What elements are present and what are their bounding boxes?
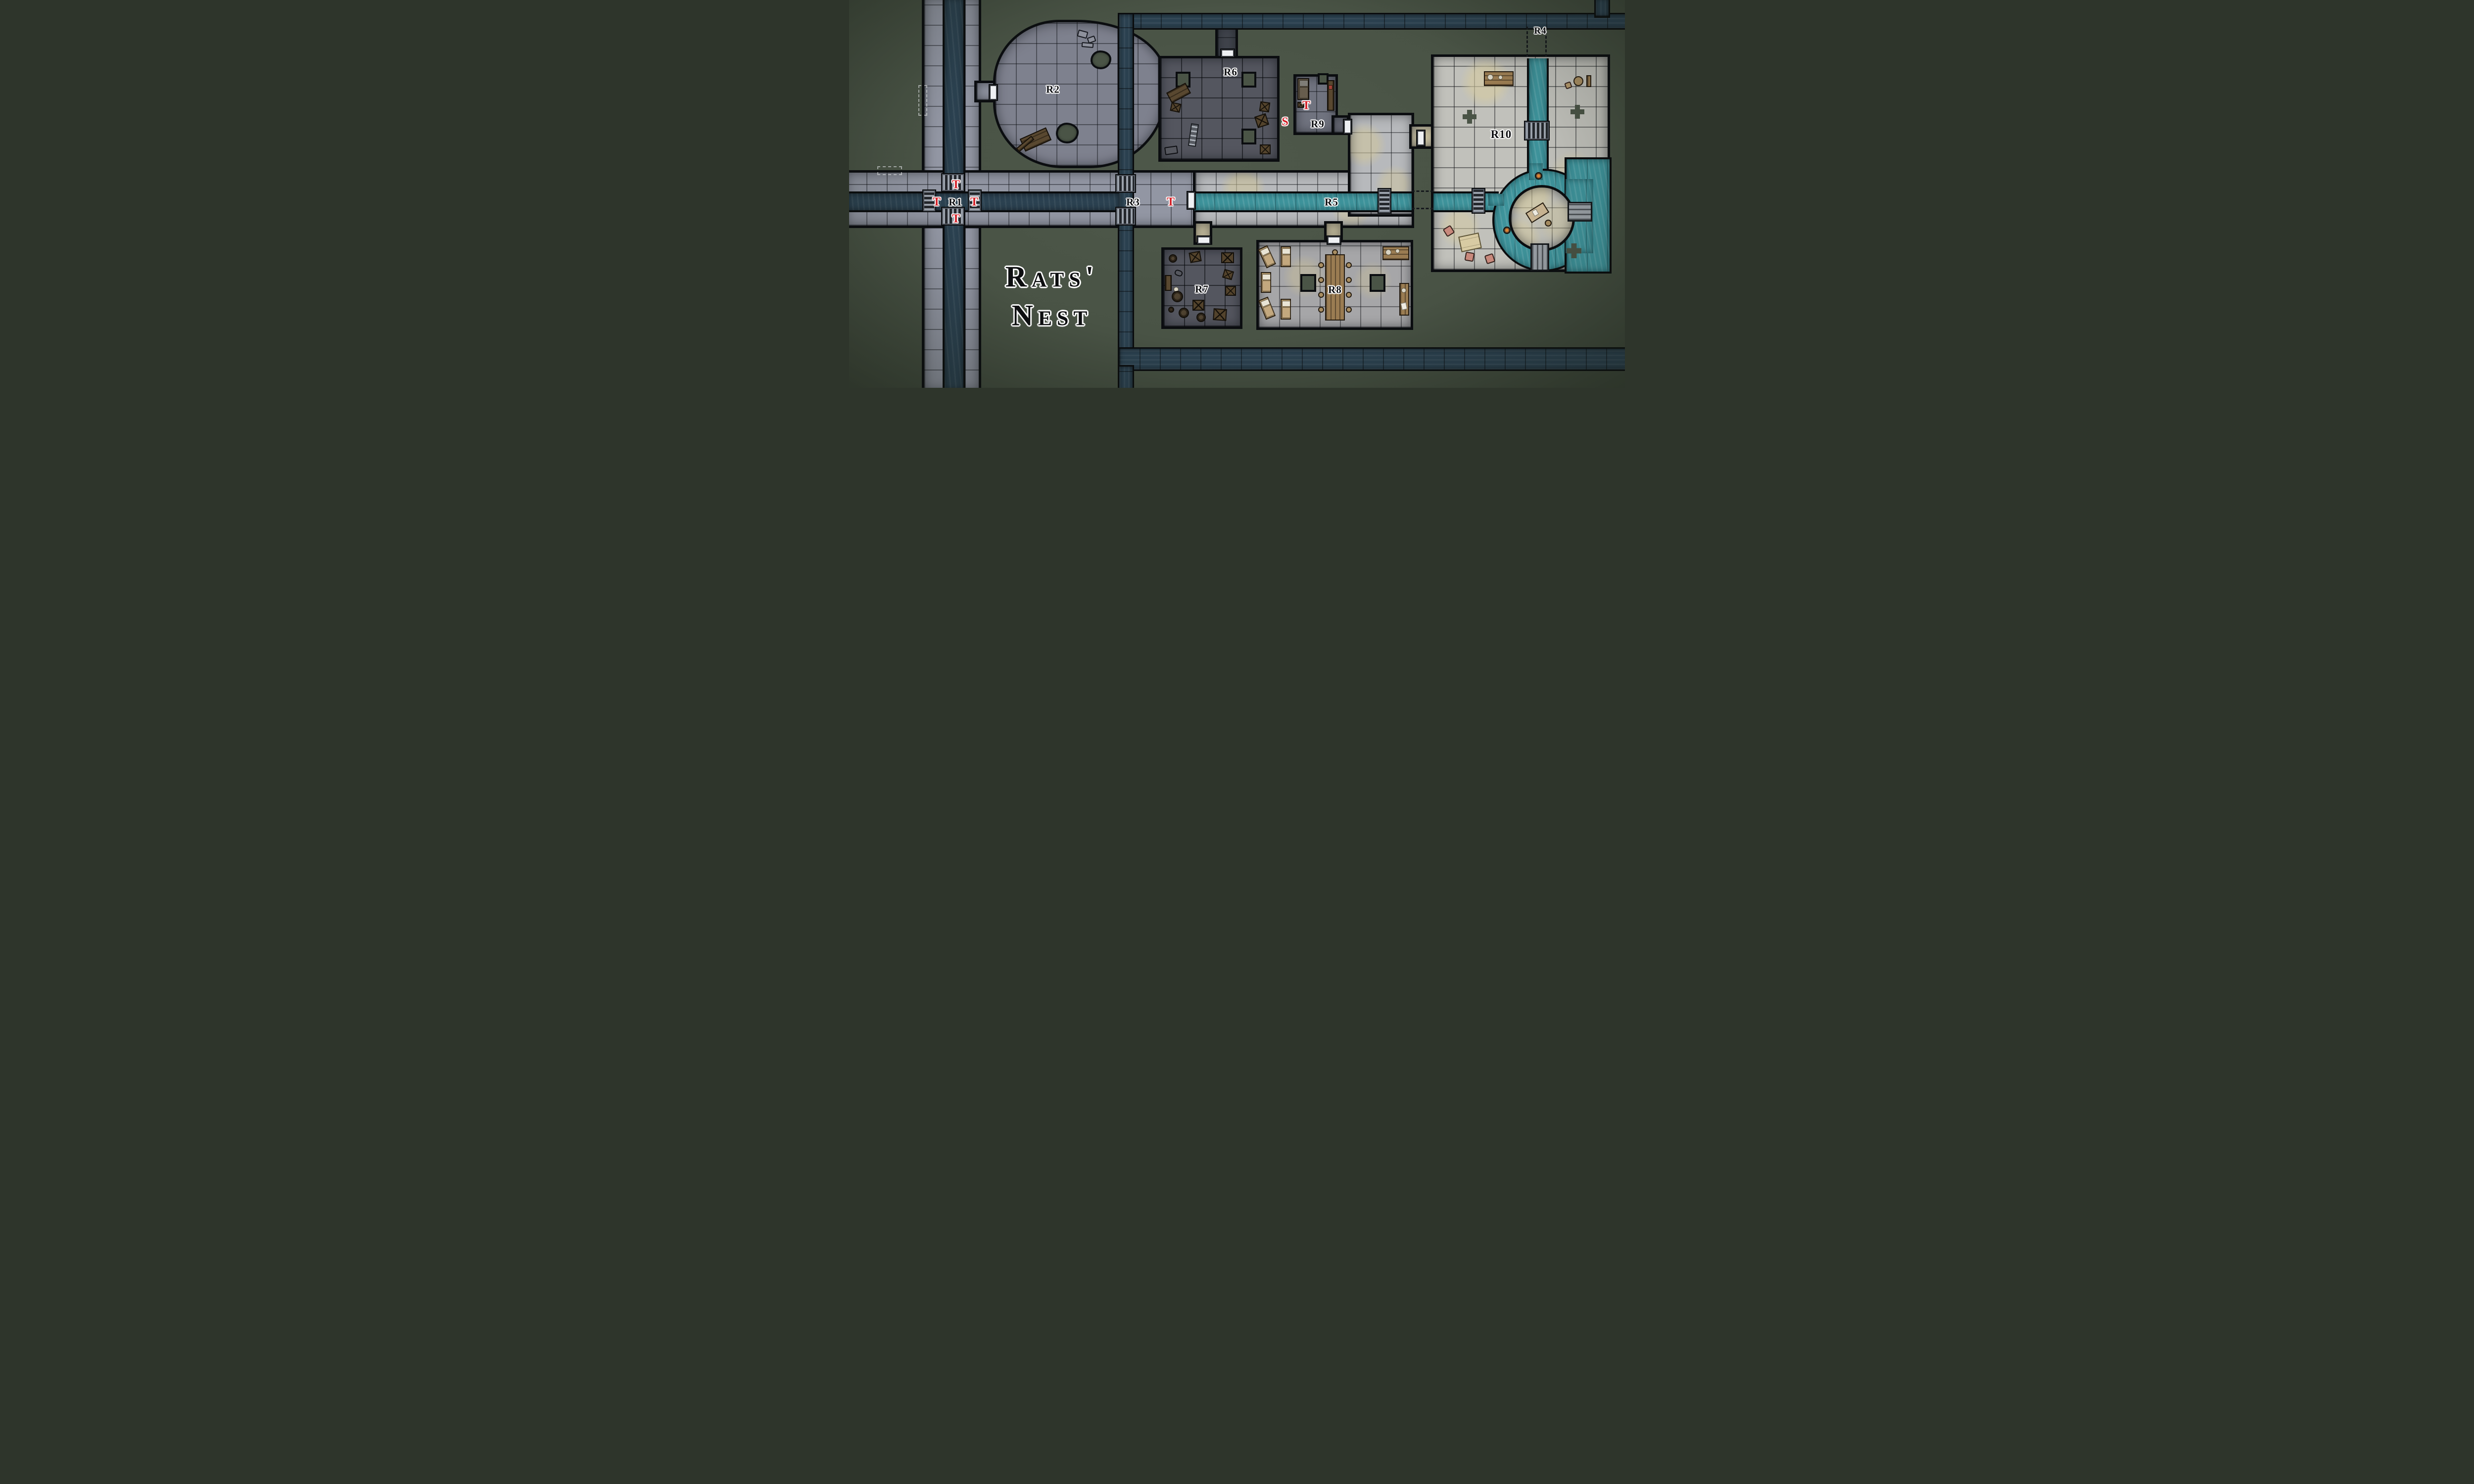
crate <box>1221 252 1234 263</box>
secret-door-marker: S <box>1282 116 1288 129</box>
room-label-r3: R3 <box>1126 196 1140 209</box>
pillar-hole <box>1372 276 1383 290</box>
door-r6-north <box>1221 49 1234 57</box>
room-label-r8: R8 <box>1328 284 1342 296</box>
bed <box>1281 299 1291 320</box>
dashed-link-r5-top <box>1412 190 1433 192</box>
sewer-channel-bottom-stub <box>1118 365 1134 388</box>
stool <box>1332 249 1338 255</box>
bench <box>1586 75 1591 87</box>
barrel <box>1179 308 1189 318</box>
bed <box>1281 246 1291 267</box>
room-label-r1: R1 <box>949 196 962 209</box>
ladder-crossing-r10 <box>1473 189 1484 213</box>
trap-marker-r1-south: T <box>952 213 960 226</box>
dashed-link-r4-left <box>1526 27 1528 57</box>
plate <box>1401 288 1406 293</box>
door-r2-west <box>990 85 997 100</box>
map-title-line1: Rats' <box>1005 260 1099 294</box>
stool <box>1318 307 1324 313</box>
water-channel-horizontal-west <box>849 191 1119 212</box>
bed <box>1297 78 1309 100</box>
pillar-hole <box>1243 131 1254 142</box>
barrel <box>1169 254 1177 263</box>
dashed-secret-nook-southwest <box>877 166 902 175</box>
portcullis-grate-r10 <box>1525 122 1549 139</box>
dungeon-map: T T T T T T S R1 R2 R3 R4 R5 R6 R7 R8 R9… <box>849 0 1625 388</box>
room-label-r7: R7 <box>1195 283 1209 296</box>
armchair <box>1465 252 1475 262</box>
rope-box <box>1165 275 1172 291</box>
trap-marker-r9: T <box>1302 99 1310 113</box>
sewer-channel-top <box>1119 13 1625 30</box>
ladder-crossing-r5 <box>1379 189 1390 213</box>
trap-marker-r3: T <box>1167 196 1175 209</box>
door-r10-west <box>1417 131 1425 145</box>
room-label-r10: R10 <box>1491 128 1512 141</box>
moat-island <box>1511 187 1572 249</box>
room-label-r4: R4 <box>1534 26 1546 37</box>
chair <box>1545 220 1552 227</box>
crate-with-kettle <box>1192 300 1204 311</box>
red-book <box>1329 85 1332 90</box>
sewer-channel-bottom <box>1118 347 1625 371</box>
sewer-channel-top-right-stub <box>1594 0 1610 18</box>
plate <box>1385 249 1391 255</box>
rubble-pile <box>1082 42 1094 48</box>
portcullis-grate-r3-north <box>1116 175 1135 192</box>
stool <box>1346 262 1352 268</box>
bed <box>1261 272 1271 293</box>
stool <box>1346 277 1352 283</box>
stool <box>1346 292 1352 298</box>
trap-marker-r1-west: T <box>933 196 941 209</box>
wall-notch <box>1320 75 1327 83</box>
pillar-hole <box>1243 74 1254 86</box>
crate <box>1259 101 1271 113</box>
stool <box>1346 307 1352 313</box>
room-label-r5: R5 <box>1325 196 1338 209</box>
crate <box>1213 308 1227 321</box>
stairs-bridge-south <box>1530 243 1549 271</box>
brazier <box>1503 227 1511 234</box>
dashed-link-r5-bottom <box>1412 208 1433 209</box>
map-title-line2: Nest <box>1012 299 1093 333</box>
crate <box>1170 102 1181 113</box>
stool <box>1318 277 1324 283</box>
portcullis-grate-r3-south <box>1116 208 1135 225</box>
brazier <box>1535 172 1542 180</box>
pillar-hole <box>1302 276 1314 290</box>
door-r7-north <box>1197 236 1210 244</box>
room-label-r2: R2 <box>1046 84 1060 96</box>
crate <box>1260 144 1271 154</box>
door-r3-to-r5 <box>1188 192 1195 209</box>
round-table <box>1573 76 1583 86</box>
barrel <box>1168 307 1174 313</box>
plate <box>1395 249 1400 253</box>
room-label-r9: R9 <box>1311 118 1325 131</box>
door-r8-north <box>1328 236 1340 244</box>
barrel <box>1196 313 1206 322</box>
plate <box>1498 75 1503 80</box>
barrel <box>1172 291 1183 302</box>
stool <box>1318 262 1324 268</box>
crate <box>1225 286 1236 296</box>
plate <box>1487 74 1493 80</box>
dashed-secret-nook-west <box>918 85 927 116</box>
waterway-r10-north <box>1527 58 1549 177</box>
stool <box>1318 292 1324 298</box>
stairs-bridge-east <box>1568 202 1592 222</box>
trap-marker-r1-north: T <box>952 179 960 192</box>
crate <box>1189 251 1201 263</box>
room-label-r6: R6 <box>1224 66 1237 79</box>
trap-marker-r1-east: T <box>970 196 978 209</box>
door-r9-east <box>1344 120 1351 134</box>
water-join <box>1488 194 1504 206</box>
